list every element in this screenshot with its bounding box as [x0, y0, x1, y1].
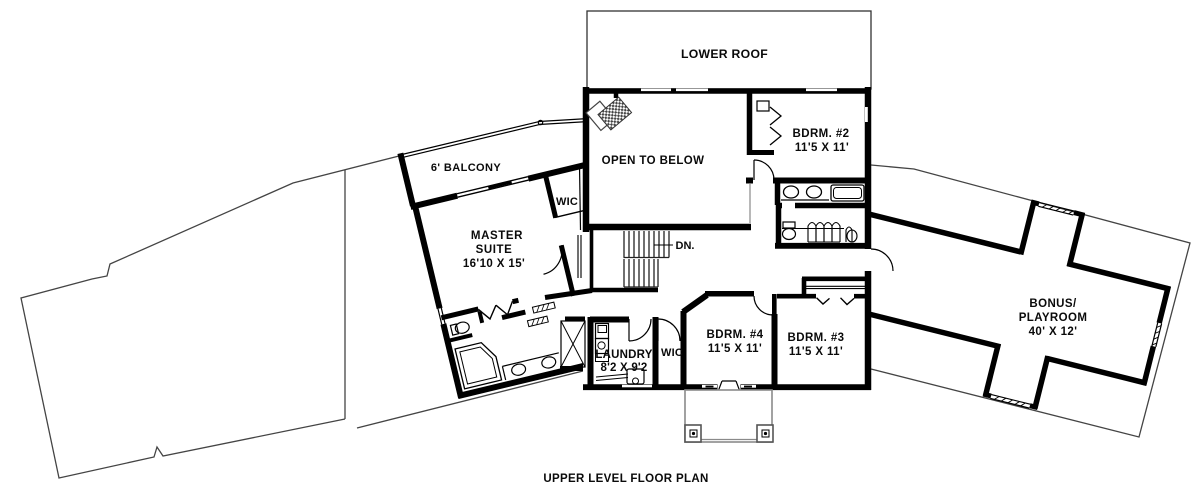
svg-text:SUITE: SUITE	[476, 244, 513, 256]
svg-text:40' X 12': 40' X 12'	[1029, 326, 1078, 338]
svg-text:LOWER ROOF: LOWER ROOF	[681, 47, 768, 61]
svg-text:BDRM. #2: BDRM. #2	[793, 128, 850, 140]
svg-text:BDRM. #4: BDRM. #4	[707, 329, 764, 341]
svg-text:6' BALCONY: 6' BALCONY	[431, 162, 501, 174]
svg-text:PLAYROOM: PLAYROOM	[1019, 312, 1088, 324]
svg-text:8'2 X 9'2: 8'2 X 9'2	[601, 362, 648, 374]
svg-text:WIC: WIC	[556, 196, 578, 208]
svg-text:11'5 X 11': 11'5 X 11'	[795, 142, 849, 154]
svg-text:OPEN TO BELOW: OPEN TO BELOW	[602, 155, 705, 167]
svg-text:LAUNDRY: LAUNDRY	[595, 349, 652, 361]
svg-text:MASTER: MASTER	[471, 230, 523, 242]
svg-text:UPPER LEVEL FLOOR PLAN: UPPER LEVEL FLOOR PLAN	[543, 473, 708, 485]
svg-text:BONUS/: BONUS/	[1029, 298, 1077, 310]
svg-text:11'5 X 11': 11'5 X 11'	[708, 343, 762, 355]
svg-text:16'10 X 15': 16'10 X 15'	[463, 258, 525, 270]
svg-text:11'5 X 11': 11'5 X 11'	[789, 346, 843, 358]
svg-text:DN.: DN.	[676, 240, 695, 252]
svg-text:BDRM. #3: BDRM. #3	[788, 332, 845, 344]
svg-text:WIC: WIC	[661, 347, 683, 359]
